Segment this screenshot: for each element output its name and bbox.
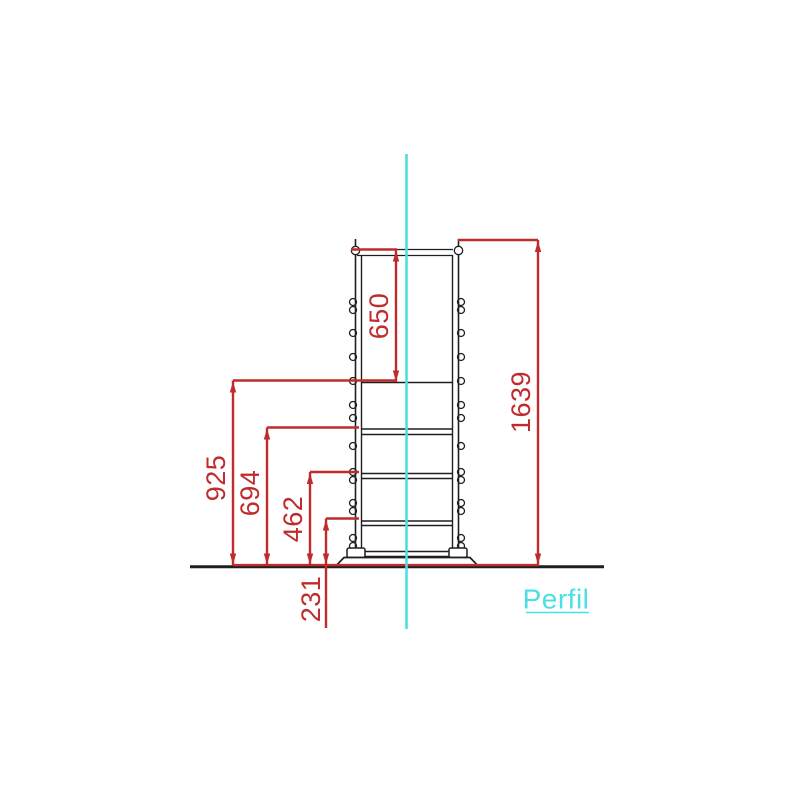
right-base-clamp (449, 548, 467, 558)
arrow-down-icon (230, 554, 236, 565)
dim-462-label: 462 (278, 496, 308, 543)
dim-top-bay-650: 650 (351, 250, 399, 383)
dim-231-label: 231 (296, 576, 326, 623)
arrow-up-icon (230, 382, 236, 393)
dim-925-label: 925 (201, 455, 231, 502)
drawing-canvas: 1639 650 925 694 462 231 (0, 0, 800, 800)
arrow-down-icon (264, 554, 270, 565)
arrow-up-icon (535, 241, 541, 252)
dim-694-label: 694 (235, 470, 265, 517)
profile-drawing: 1639 650 925 694 462 231 (0, 0, 800, 800)
arrow-down-icon (535, 554, 541, 565)
dim-650-label: 650 (364, 293, 394, 340)
dim-total-height-1639: 1639 (458, 240, 541, 565)
arrow-down-icon (323, 554, 329, 565)
arrow-up-icon (264, 429, 270, 440)
view-label-group: Perfil (523, 584, 590, 615)
view-label: Perfil (523, 584, 590, 615)
arrow-down-icon (307, 554, 313, 565)
left-base-clamp (347, 548, 365, 558)
top-right-bolt (454, 246, 462, 254)
dim-1639-label: 1639 (506, 371, 536, 433)
arrow-up-icon (307, 473, 313, 484)
arrow-up-icon (323, 520, 329, 531)
